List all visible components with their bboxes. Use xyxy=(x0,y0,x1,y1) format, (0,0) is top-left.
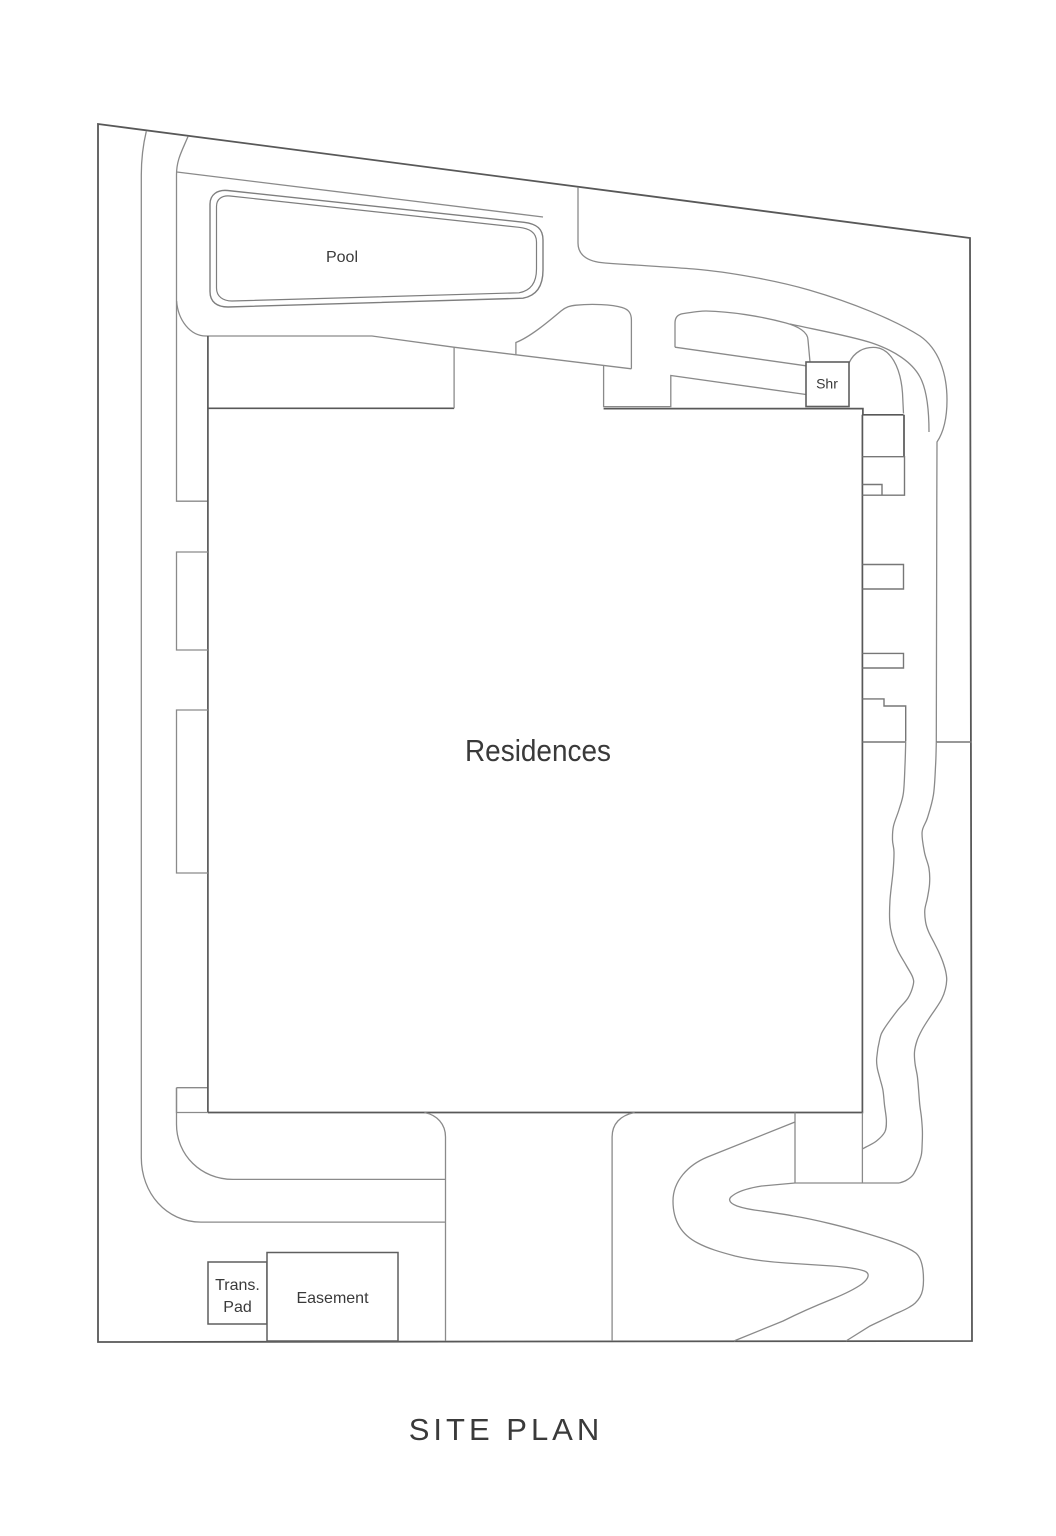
svg-text:Pool: Pool xyxy=(326,249,358,266)
svg-text:SITE PLAN: SITE PLAN xyxy=(409,1412,604,1447)
svg-text:Pad: Pad xyxy=(223,1299,251,1316)
svg-text:Trans.: Trans. xyxy=(215,1277,260,1294)
svg-text:Shr: Shr xyxy=(816,376,838,392)
svg-text:Residences: Residences xyxy=(465,733,611,768)
svg-text:Easement: Easement xyxy=(296,1290,369,1307)
